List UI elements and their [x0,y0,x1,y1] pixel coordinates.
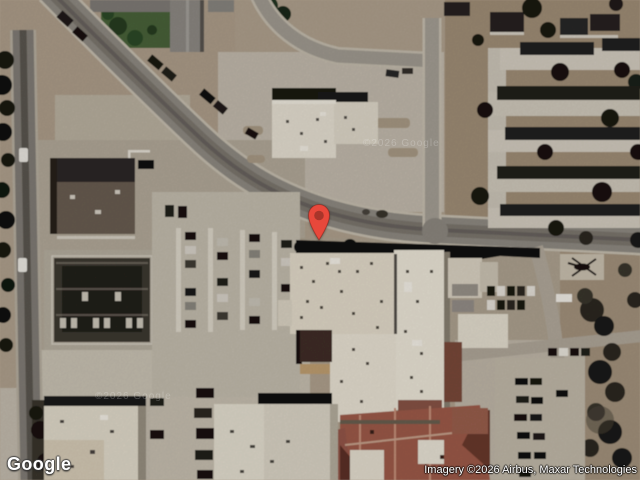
map-pin-icon[interactable] [304,202,334,242]
map-viewport[interactable]: ©2026 Google ©2026 Google Google Imagery… [0,0,640,480]
map-pin-body [309,205,330,241]
imagery-attribution: Imagery ©2026 Airbus, Maxar Technologies [424,464,637,476]
map-pin-inner-dot [314,211,324,221]
google-logo[interactable]: Google [7,454,71,475]
